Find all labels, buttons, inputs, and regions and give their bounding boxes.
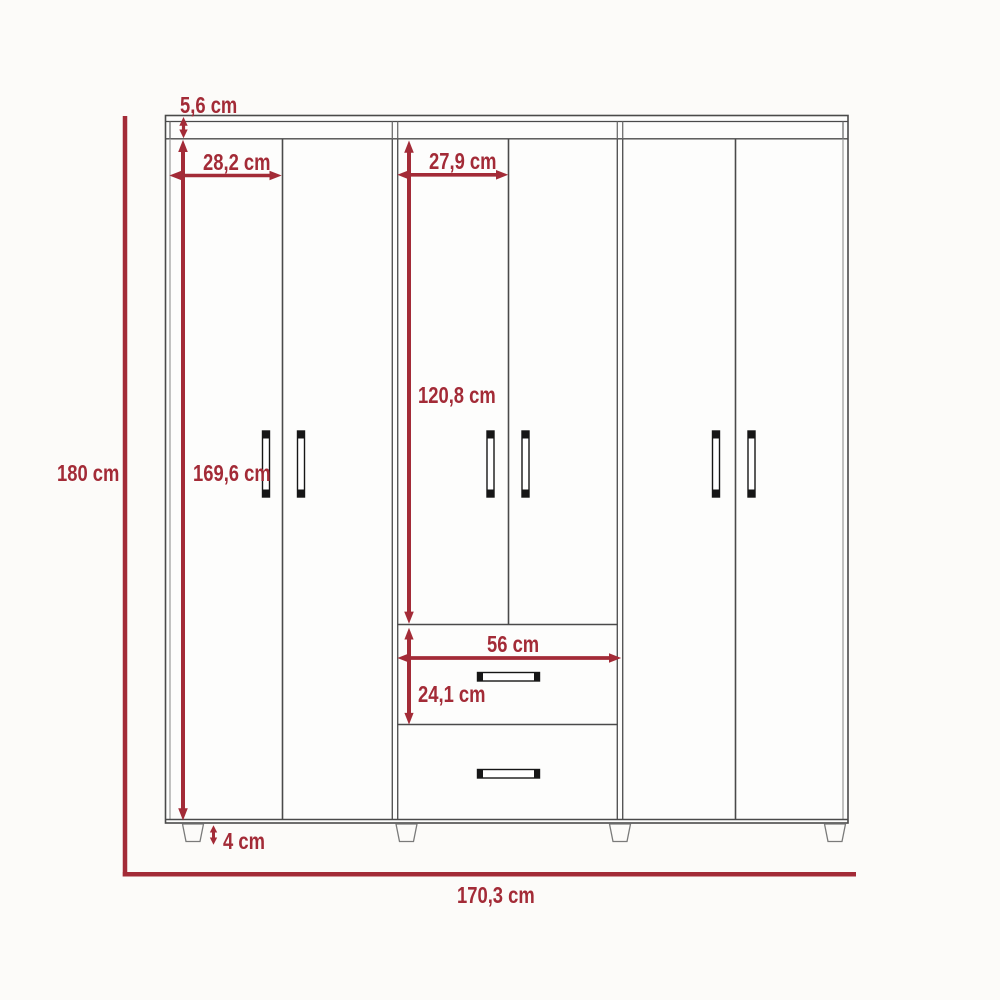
- dim-label-drawer-width: 56 cm: [487, 633, 539, 656]
- dim-label-drawer-height: 24,1 cm: [418, 683, 486, 706]
- wardrobe-leg: [396, 824, 417, 842]
- drawer-handle: [478, 770, 540, 779]
- door-handle: [713, 431, 720, 497]
- wardrobe-leg: [183, 824, 204, 842]
- wardrobe-dimension-diagram: 5,6 cm 28,2 cm 27,9 cm 180 cm 169,6 cm 1…: [0, 0, 1000, 1000]
- door-handle: [298, 431, 305, 497]
- wardrobe-leg: [610, 824, 631, 842]
- dim-label-center-door-width: 27,9 cm: [429, 150, 497, 173]
- door-handle: [522, 431, 529, 497]
- dim-label-left-door-width: 28,2 cm: [203, 151, 271, 174]
- dim-label-top-panel-height: 5,6 cm: [180, 94, 237, 117]
- dim-label-door-height: 169,6 cm: [193, 462, 271, 485]
- diagram-canvas: [0, 0, 1000, 1000]
- drawer-handle: [478, 673, 540, 682]
- legs: [183, 824, 846, 842]
- dim-label-overall-height: 180 cm: [57, 462, 119, 485]
- dim-arrow-leg-height: [210, 825, 217, 844]
- door-handle: [487, 431, 494, 497]
- wardrobe-leg: [825, 824, 846, 842]
- dim-label-overall-width: 170,3 cm: [457, 884, 535, 907]
- dim-label-center-upper-door-height: 120,8 cm: [418, 384, 496, 407]
- dim-label-leg-height: 4 cm: [223, 830, 265, 853]
- door-handle: [748, 431, 755, 497]
